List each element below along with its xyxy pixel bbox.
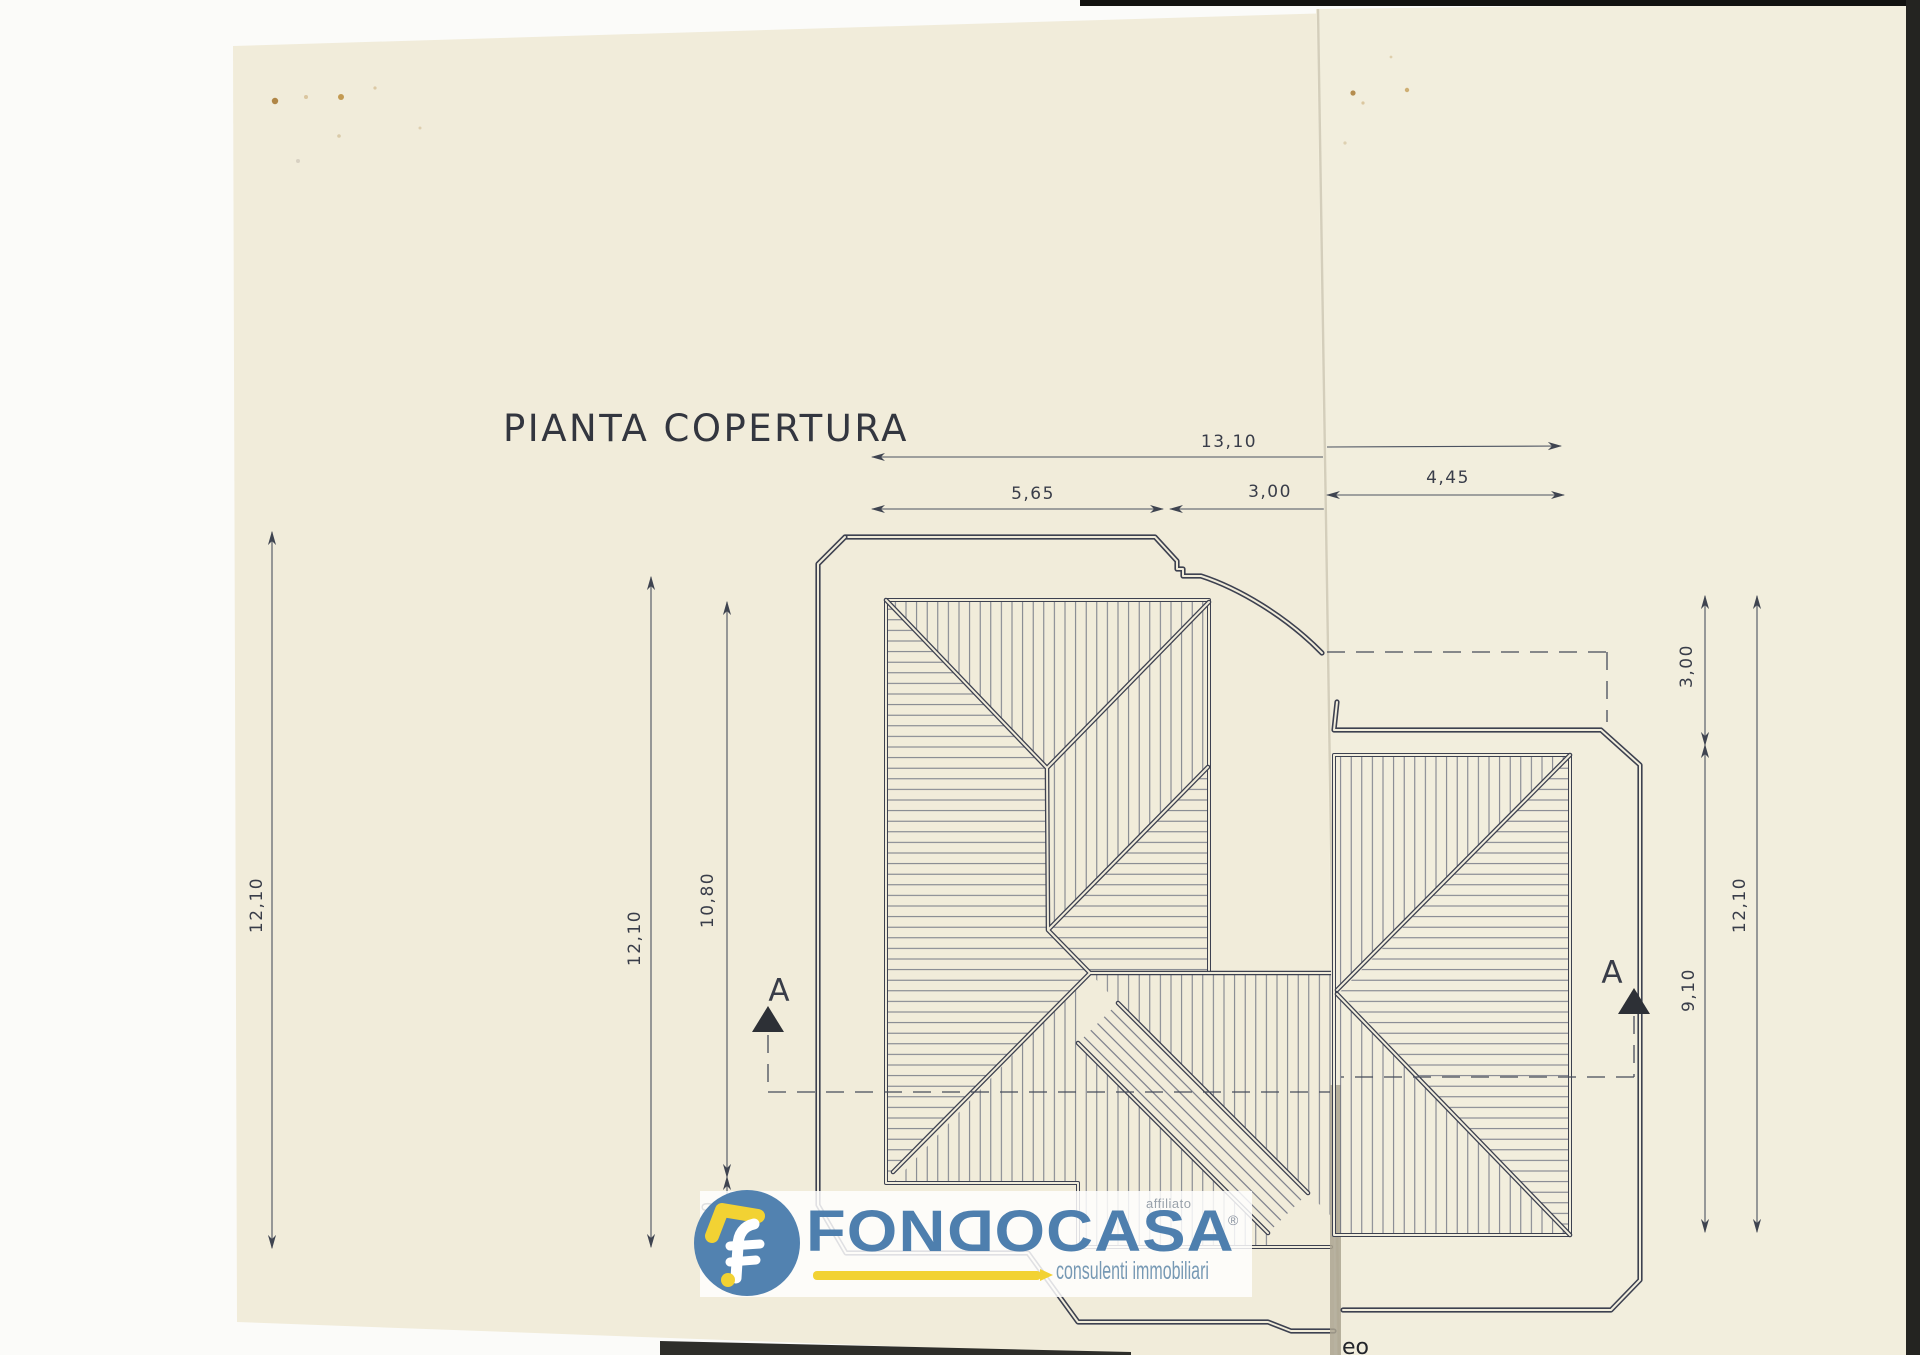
roof-slopes-right (1334, 755, 1570, 1235)
dim-top-total: 13,10 (1201, 432, 1257, 452)
scan-right-strip (1906, 0, 1920, 1355)
scan-top-strip (1080, 0, 1920, 6)
roof-plan-canvas: PIANTA COPERTURA (0, 0, 1920, 1355)
scanned-roof-plan-document: PIANTA COPERTURA (0, 0, 1920, 1355)
logo-yellow-bar (813, 1271, 1041, 1280)
fondocasa-wordmark: FONDOCASA (806, 1203, 1235, 1261)
brand-post: OCASA (995, 1199, 1235, 1264)
dim-left-outer: 12,10 (247, 877, 267, 933)
dim-top-seg2: 3,00 (1248, 482, 1292, 502)
dim-top-seg1: 5,65 (1011, 484, 1055, 504)
fondocasa-logo-icon (694, 1190, 800, 1296)
partial-text-fragment: eo (1342, 1335, 1369, 1355)
main-sheet: PIANTA COPERTURA (233, 13, 1334, 1355)
section-label-left: A (768, 973, 789, 1009)
brand-flipped-d: D (946, 1203, 994, 1261)
dim-right-total: 12,10 (1730, 877, 1750, 933)
dim-top-seg3: 4,45 (1426, 468, 1470, 488)
section-label-right: A (1601, 955, 1622, 991)
logo-emblem-icon (694, 1190, 800, 1296)
dim-left-mid: 10,80 (698, 872, 718, 928)
registered-mark: ® (1228, 1212, 1238, 1228)
logo-tagline: consulenti immobiliari (1056, 1259, 1209, 1284)
dim-left-inner: 12,10 (625, 910, 645, 966)
drawing-title: PIANTA COPERTURA (503, 407, 909, 450)
affiliate-label: affiliato (1146, 1196, 1191, 1211)
right-sheet: A 4,45 3,00 9,10 12,10 eo (1316, 2, 1906, 1355)
dim-right-upper: 3,00 (1677, 644, 1697, 688)
brand-pre: FON (806, 1199, 946, 1264)
dim-right-lower: 9,10 (1679, 968, 1699, 1012)
